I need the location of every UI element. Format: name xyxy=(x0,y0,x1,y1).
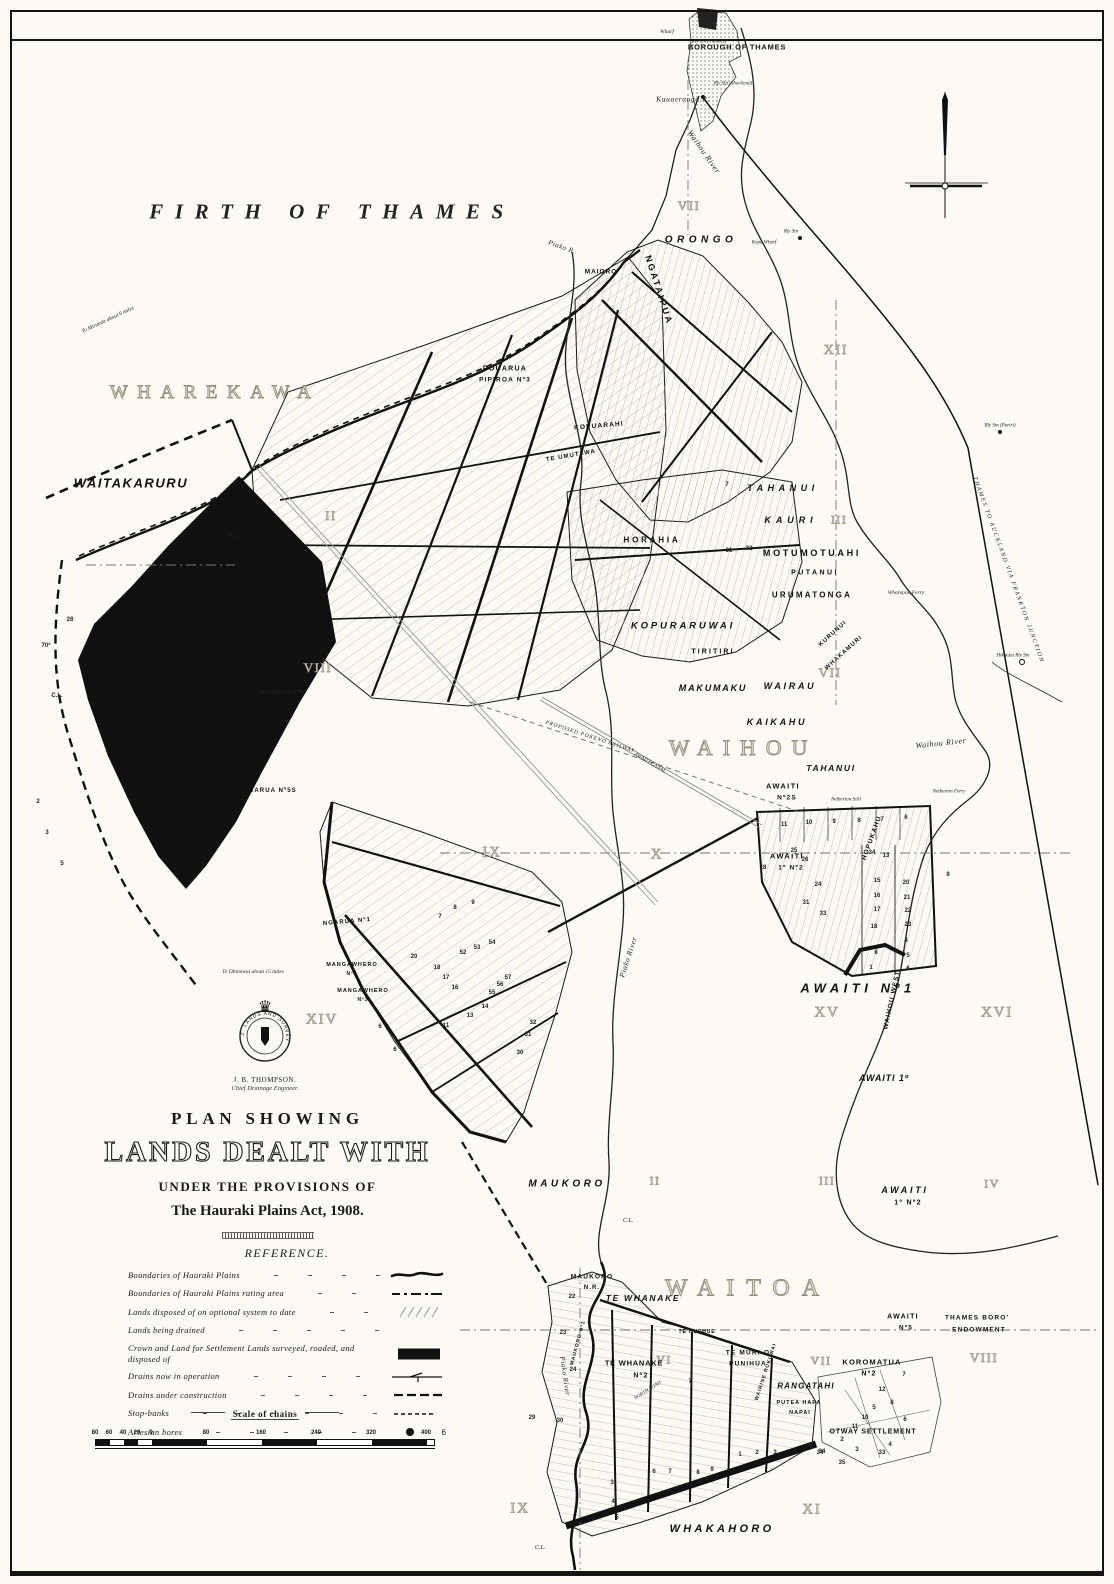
map-label: 70ª xyxy=(42,643,51,649)
map-label: 9 xyxy=(471,900,474,906)
legend-symbol-drain-con-icon xyxy=(390,1389,446,1401)
map-label: MOTUMOTUAHI xyxy=(763,548,861,558)
map-label: NGARUA Nº5S xyxy=(243,788,297,794)
map-label: 26 xyxy=(802,857,809,863)
map-label: 52 xyxy=(460,950,467,956)
map-label: Piako R. xyxy=(547,238,577,255)
legend-label: Crown and Land for Settlement Lands surv… xyxy=(128,1343,360,1364)
title-line-1: PLAN SHOWING xyxy=(95,1109,440,1129)
map-label: TIRITIRI xyxy=(691,649,734,656)
map-label: Waihou River xyxy=(686,128,723,175)
map-label: VII xyxy=(811,1354,832,1369)
map-label: 16 xyxy=(452,985,459,991)
map-label: 18 xyxy=(871,924,878,930)
map-label: Wharepoa Ferry xyxy=(888,590,925,596)
legend-label: Lands disposed of on optional system to … xyxy=(128,1307,296,1318)
scale-bar-graphic xyxy=(95,1439,435,1446)
map-label: KAURI xyxy=(764,515,817,525)
engineer-credit: J. B. THOMPSON. Chief Drainage Engineer. xyxy=(160,1076,370,1092)
map-label: 6 xyxy=(903,1417,906,1423)
map-label: Waihou River xyxy=(915,736,967,750)
map-label: PUNIHUA xyxy=(729,1361,767,1368)
map-label: IX xyxy=(482,845,501,862)
map-label: 10 xyxy=(862,1415,869,1421)
map-label: 1º Nº2 xyxy=(894,1200,921,1207)
map-label: FIRTH OF THAMES xyxy=(149,200,514,225)
map-label: Nº5 xyxy=(899,1325,913,1332)
map-label: 6 xyxy=(393,1047,396,1053)
legend-row: Boundaries of Hauraki Plains rating area xyxy=(128,1288,446,1300)
map-label: 18 xyxy=(434,965,441,971)
title-divider xyxy=(222,1232,314,1239)
map-label: WHAREKAWA xyxy=(110,382,321,404)
map-label: URUMATONGA xyxy=(772,591,852,600)
map-label: PUTANUI xyxy=(791,570,839,577)
map-label: TAHANUI xyxy=(747,483,818,493)
map-label: ENDOWMENT xyxy=(952,1327,1006,1334)
map-label: 4 xyxy=(888,1442,891,1448)
map-label: 9 xyxy=(946,872,949,878)
map-label: Netherton Schl xyxy=(831,798,861,803)
map-label: 57 xyxy=(505,975,512,981)
scale-bar: Scale of chains 80604020080160240320400 xyxy=(95,1404,435,1449)
map-label: 32 xyxy=(530,1020,537,1026)
scale-segment xyxy=(262,1440,317,1445)
map-label: AWAITI xyxy=(770,852,804,861)
legend-note: 6 xyxy=(442,1428,446,1437)
legend-label: Lands being drained xyxy=(128,1325,205,1336)
scale-tick: 0 xyxy=(149,1430,152,1436)
map-label: 30 xyxy=(517,1050,524,1056)
reference-heading: REFERENCE. xyxy=(128,1246,446,1261)
map-label: 22 xyxy=(905,908,912,914)
scale-segment xyxy=(110,1440,124,1445)
map-label: Netherton Ferry xyxy=(933,790,966,795)
map-label: XII xyxy=(824,343,848,359)
map-label: 21 xyxy=(904,895,911,901)
legend-leader xyxy=(288,1293,386,1294)
map-label: WAITAKARURU xyxy=(74,476,188,491)
map-label: NGATAIPUA xyxy=(643,254,675,326)
map-label: MANGAWHERO xyxy=(337,988,388,994)
scale-segment xyxy=(96,1440,110,1445)
map-label: 20 xyxy=(903,880,910,886)
map-label: 31 xyxy=(726,548,733,554)
map-label: 28 xyxy=(760,865,767,871)
title-line-4: The Hauraki Plains Act, 1908. xyxy=(95,1203,440,1220)
map-label: Rly Stn (Shortland) xyxy=(714,82,753,87)
map-label: VIII xyxy=(970,1350,999,1366)
map-label: III xyxy=(819,1174,835,1189)
map-label: 5 xyxy=(60,861,63,867)
map-label: 8 xyxy=(696,1470,699,1476)
map-label: 33 xyxy=(820,911,827,917)
map-label: 11 xyxy=(852,1424,858,1430)
map-label: Nº2 xyxy=(347,971,358,977)
legend-leader xyxy=(364,1353,386,1354)
legend-row: Lands being drained xyxy=(128,1325,446,1337)
map-label: 1º Nº2 xyxy=(778,865,804,872)
map-label: WAIHOU WEST xyxy=(882,970,901,1030)
map-label: Wharf xyxy=(660,29,674,35)
map-label: RANGATAHI xyxy=(777,1382,835,1391)
map-label: 5 xyxy=(615,1515,618,1521)
map-label: Piako River xyxy=(617,936,639,979)
map-sheet: ♛ N.Z. LANDS AND SURVEY FIRTH OF THAMESW… xyxy=(0,0,1114,1584)
map-label: IV xyxy=(984,1177,1000,1192)
map-label: AWAITI xyxy=(887,1314,919,1321)
map-label: NGARUA Nº1 xyxy=(323,917,372,927)
map-label: POUARUA xyxy=(483,366,527,373)
map-label: 28 xyxy=(67,617,74,623)
legend-leader xyxy=(244,1275,386,1276)
map-label: 17 xyxy=(443,975,450,981)
map-label: N.R. xyxy=(584,1285,600,1291)
scale-tick: 80 xyxy=(203,1430,210,1436)
map-label: 8 xyxy=(890,1400,893,1406)
map-label: III xyxy=(831,513,847,528)
map-label: 17 xyxy=(874,907,881,913)
map-label: Hikutaia Rly Stn xyxy=(996,654,1029,659)
map-label: 23 xyxy=(560,1330,567,1336)
map-label: 34 xyxy=(817,1450,824,1456)
map-label: 7 xyxy=(438,914,441,920)
map-label: TE WHANAKE xyxy=(605,1359,663,1368)
map-label: 11 xyxy=(781,822,787,828)
map-label: 16 xyxy=(874,893,881,899)
map-label: 6 xyxy=(904,815,907,821)
scale-tick: 20 xyxy=(134,1430,141,1436)
map-label: 56 xyxy=(497,982,504,988)
map-label: 8 xyxy=(857,818,860,824)
map-label: 7 xyxy=(902,1372,905,1378)
map-label: WAITOA xyxy=(665,1276,831,1303)
map-neatline xyxy=(12,39,1102,41)
legend-leader xyxy=(231,1395,386,1396)
scale-segment xyxy=(207,1440,262,1445)
map-label: 25 xyxy=(791,848,798,854)
title-block: PLAN SHOWING LANDS DEALT WITH UNDER THE … xyxy=(95,1095,440,1239)
legend-symbol-rating-icon xyxy=(390,1288,446,1300)
map-label: PUTEA HAPA xyxy=(776,1400,821,1406)
map-label: 2 xyxy=(755,1450,758,1456)
map-label: 10 xyxy=(806,820,813,826)
map-label: C.L. xyxy=(623,1218,633,1224)
map-label: 4 xyxy=(611,1499,614,1505)
map-label: 20 xyxy=(411,954,418,960)
map-label: AWAITI 1º xyxy=(859,1073,909,1083)
legend-label: Boundaries of Hauraki Plains xyxy=(128,1270,240,1281)
map-label: KOROMATUA xyxy=(842,1358,901,1367)
map-label: OTWAY SETTLEMENT xyxy=(830,1429,917,1436)
map-label: Rly Stn xyxy=(784,230,798,235)
scale-segment xyxy=(124,1440,138,1445)
map-label: 3 xyxy=(610,1480,613,1486)
map-label: 13 xyxy=(467,1013,474,1019)
scale-segment xyxy=(317,1440,372,1445)
map-label: 54 xyxy=(489,940,496,946)
map-label: XI xyxy=(802,1502,821,1519)
scale-segment xyxy=(152,1440,207,1445)
map-label: II xyxy=(650,1174,661,1189)
legend-symbol-boundary-icon xyxy=(390,1269,446,1281)
map-label: II xyxy=(325,508,337,524)
map-label: 7 xyxy=(688,1379,691,1385)
map-label: MANGAWHERO xyxy=(326,962,377,968)
map-label: VII xyxy=(678,198,701,214)
scale-title-wrap: Scale of chains xyxy=(95,1404,435,1422)
map-label: MAUKORO Nº1 xyxy=(569,1320,587,1366)
map-label: 2 xyxy=(36,799,39,805)
legend-row: Drains now in operation xyxy=(128,1371,446,1383)
map-label: AWAITI xyxy=(766,782,800,791)
map-label: 8 xyxy=(874,950,877,956)
map-label: 7 xyxy=(668,1469,671,1475)
map-label: 4 xyxy=(904,938,907,944)
legend-row: Crown and Land for Settlement Lands surv… xyxy=(128,1343,446,1364)
map-label: To Ohinewai about 15 miles xyxy=(222,969,284,975)
map-label: XVI xyxy=(981,1005,1013,1022)
map-label: MAUKORO xyxy=(571,1274,614,1281)
title-line-2: LANDS DEALT WITH xyxy=(95,1137,440,1169)
legend-symbol-crown-icon xyxy=(390,1348,446,1360)
scale-tick: 400 xyxy=(421,1430,431,1436)
map-label: 13 xyxy=(883,853,890,859)
scale-tick: 320 xyxy=(366,1430,376,1436)
map-label: 29 xyxy=(529,1415,536,1421)
map-label: 33 xyxy=(879,1450,886,1456)
legend-symbol-drain-op-icon xyxy=(390,1371,446,1383)
map-label: 30 xyxy=(557,1418,564,1424)
scale-ticks: 80604020080160240320400 xyxy=(95,1430,435,1438)
map-label: 24 xyxy=(815,882,822,888)
map-label: WHAKAHORO xyxy=(670,1523,775,1535)
engineer-title: Chief Drainage Engineer. xyxy=(160,1085,370,1092)
map-label: 9 xyxy=(710,1467,713,1473)
scale-tick: 160 xyxy=(256,1430,266,1436)
map-label: Nº2 xyxy=(861,1371,876,1378)
map-label: PIPIROA Nº3 xyxy=(479,377,531,384)
map-label: Nº3 xyxy=(358,997,369,1003)
legend-row: Lands disposed of on optional system to … xyxy=(128,1306,446,1318)
map-label: NORTH ROAD xyxy=(634,1380,663,1401)
scale-segment xyxy=(372,1440,427,1445)
map-label: TE WHANAKE xyxy=(606,1293,681,1303)
legend-leader xyxy=(224,1376,386,1377)
engineer-name: J. B. THOMPSON. xyxy=(160,1076,370,1084)
map-label: 2 xyxy=(840,1437,843,1443)
legend-row: Boundaries of Hauraki Plains xyxy=(128,1269,446,1281)
map-label: 7 xyxy=(880,817,883,823)
map-label: 35 xyxy=(839,1460,846,1466)
map-label: 3 xyxy=(855,1447,858,1453)
map-label: 55 xyxy=(489,990,496,996)
map-label: 6 xyxy=(652,1469,655,1475)
map-label: 7 xyxy=(725,482,728,488)
title-line-3: UNDER THE PROVISIONS OF xyxy=(95,1179,440,1195)
map-label: 6 xyxy=(378,1024,381,1030)
map-label: C.L. xyxy=(535,1545,545,1551)
map-label: 53 xyxy=(474,945,481,951)
map-label: MAKUMAKU xyxy=(679,683,747,693)
map-label: KOPUARAHI xyxy=(574,420,624,431)
map-label: HORAHIA xyxy=(624,536,681,545)
map-label: C.L. xyxy=(51,693,62,699)
map-label: 12 xyxy=(879,1387,886,1393)
map-label: VIII xyxy=(304,660,333,676)
map-label: TE UMUTAWA xyxy=(546,449,597,464)
map-label: WAIHOU xyxy=(669,735,818,761)
map-label: IX xyxy=(510,1501,529,1518)
map-label: PROPOSED POKENO RAILWAY xyxy=(545,720,636,755)
map-label: THAMES TO AUCKLAND VIA FRANKTON JUNCTION xyxy=(971,476,1044,664)
map-label: 9 xyxy=(832,819,835,825)
scale-tick: 80 xyxy=(92,1430,99,1436)
scale-tick: 240 xyxy=(311,1430,321,1436)
map-label: Rly Stn (Puriri) xyxy=(984,424,1015,429)
map-label: ORONGO xyxy=(665,235,738,246)
map-label: KOPURARUWAI xyxy=(631,621,735,632)
scale-bar-underline xyxy=(95,1448,435,1449)
legend-label: Drains under construction xyxy=(128,1390,227,1401)
map-label: AWAITI xyxy=(881,1185,928,1195)
map-label: N.L. xyxy=(228,533,238,539)
map-label: TE HUEHUE xyxy=(679,1329,716,1335)
scale-segment xyxy=(138,1440,152,1445)
map-label: TE MURI-O xyxy=(726,1350,770,1357)
map-label: XV xyxy=(814,1005,839,1022)
map-label: 1 xyxy=(738,1452,741,1458)
map-label: 3 xyxy=(773,1450,776,1456)
map-label: 31 xyxy=(803,900,810,906)
map-label: To Miranda about 6 miles xyxy=(81,305,135,335)
map-label: MAIORO xyxy=(585,269,618,276)
map-label: TAHANUI xyxy=(806,763,856,773)
legend-leader xyxy=(300,1312,386,1313)
map-label: X xyxy=(651,847,664,864)
map-label: MAUKORO xyxy=(528,1179,605,1190)
map-label: 6 xyxy=(906,966,909,972)
scale-tick: 40 xyxy=(120,1430,127,1436)
map-label: KAIKAHU xyxy=(747,717,807,727)
map-label: 8 xyxy=(453,905,456,911)
map-label: 23 xyxy=(905,922,912,928)
map-label: Nº2S xyxy=(777,795,797,802)
map-label: NAPAI xyxy=(789,1410,811,1416)
map-label: Kauaeranga R. xyxy=(656,95,710,104)
map-label: 3 xyxy=(45,830,48,836)
map-label: KURUNUI xyxy=(818,620,848,648)
map-label: 24 xyxy=(570,1367,577,1373)
scale-tick: 60 xyxy=(106,1430,113,1436)
map-label: 5 xyxy=(872,1405,875,1411)
map-label: Nº2 xyxy=(633,1373,648,1380)
map-label: 31 xyxy=(525,1032,532,1038)
legend-leader xyxy=(209,1330,386,1331)
legend-label: Boundaries of Hauraki Plains rating area xyxy=(128,1288,284,1299)
map-label: 5 xyxy=(906,953,909,959)
legend-label: Drains now in operation xyxy=(128,1371,220,1382)
map-label: AWAITI CANAL xyxy=(633,751,667,774)
legend-symbol-draining-icon xyxy=(390,1325,446,1337)
scale-title: Scale of chains xyxy=(231,1409,300,1420)
legend-row: Drains under construction xyxy=(128,1389,446,1401)
map-label: 11 xyxy=(443,1023,449,1029)
map-label: 34 xyxy=(869,850,876,856)
map-label: THAMES BORO' xyxy=(945,1315,1009,1322)
map-label: Kopu Wharf xyxy=(752,241,777,246)
map-label: 1 xyxy=(869,965,872,971)
map-label: 32 xyxy=(746,546,753,552)
map-label: WAITAKARURU Nº5W xyxy=(258,691,305,696)
map-label: 22 xyxy=(569,1294,576,1300)
legend-symbol-optional-icon xyxy=(390,1306,446,1318)
map-label: 15 xyxy=(874,878,881,884)
map-label: WAIRAU xyxy=(764,681,817,691)
map-label: 14 xyxy=(482,1004,489,1010)
map-label: URU xyxy=(226,694,269,715)
map-label: XIV xyxy=(306,1012,338,1029)
